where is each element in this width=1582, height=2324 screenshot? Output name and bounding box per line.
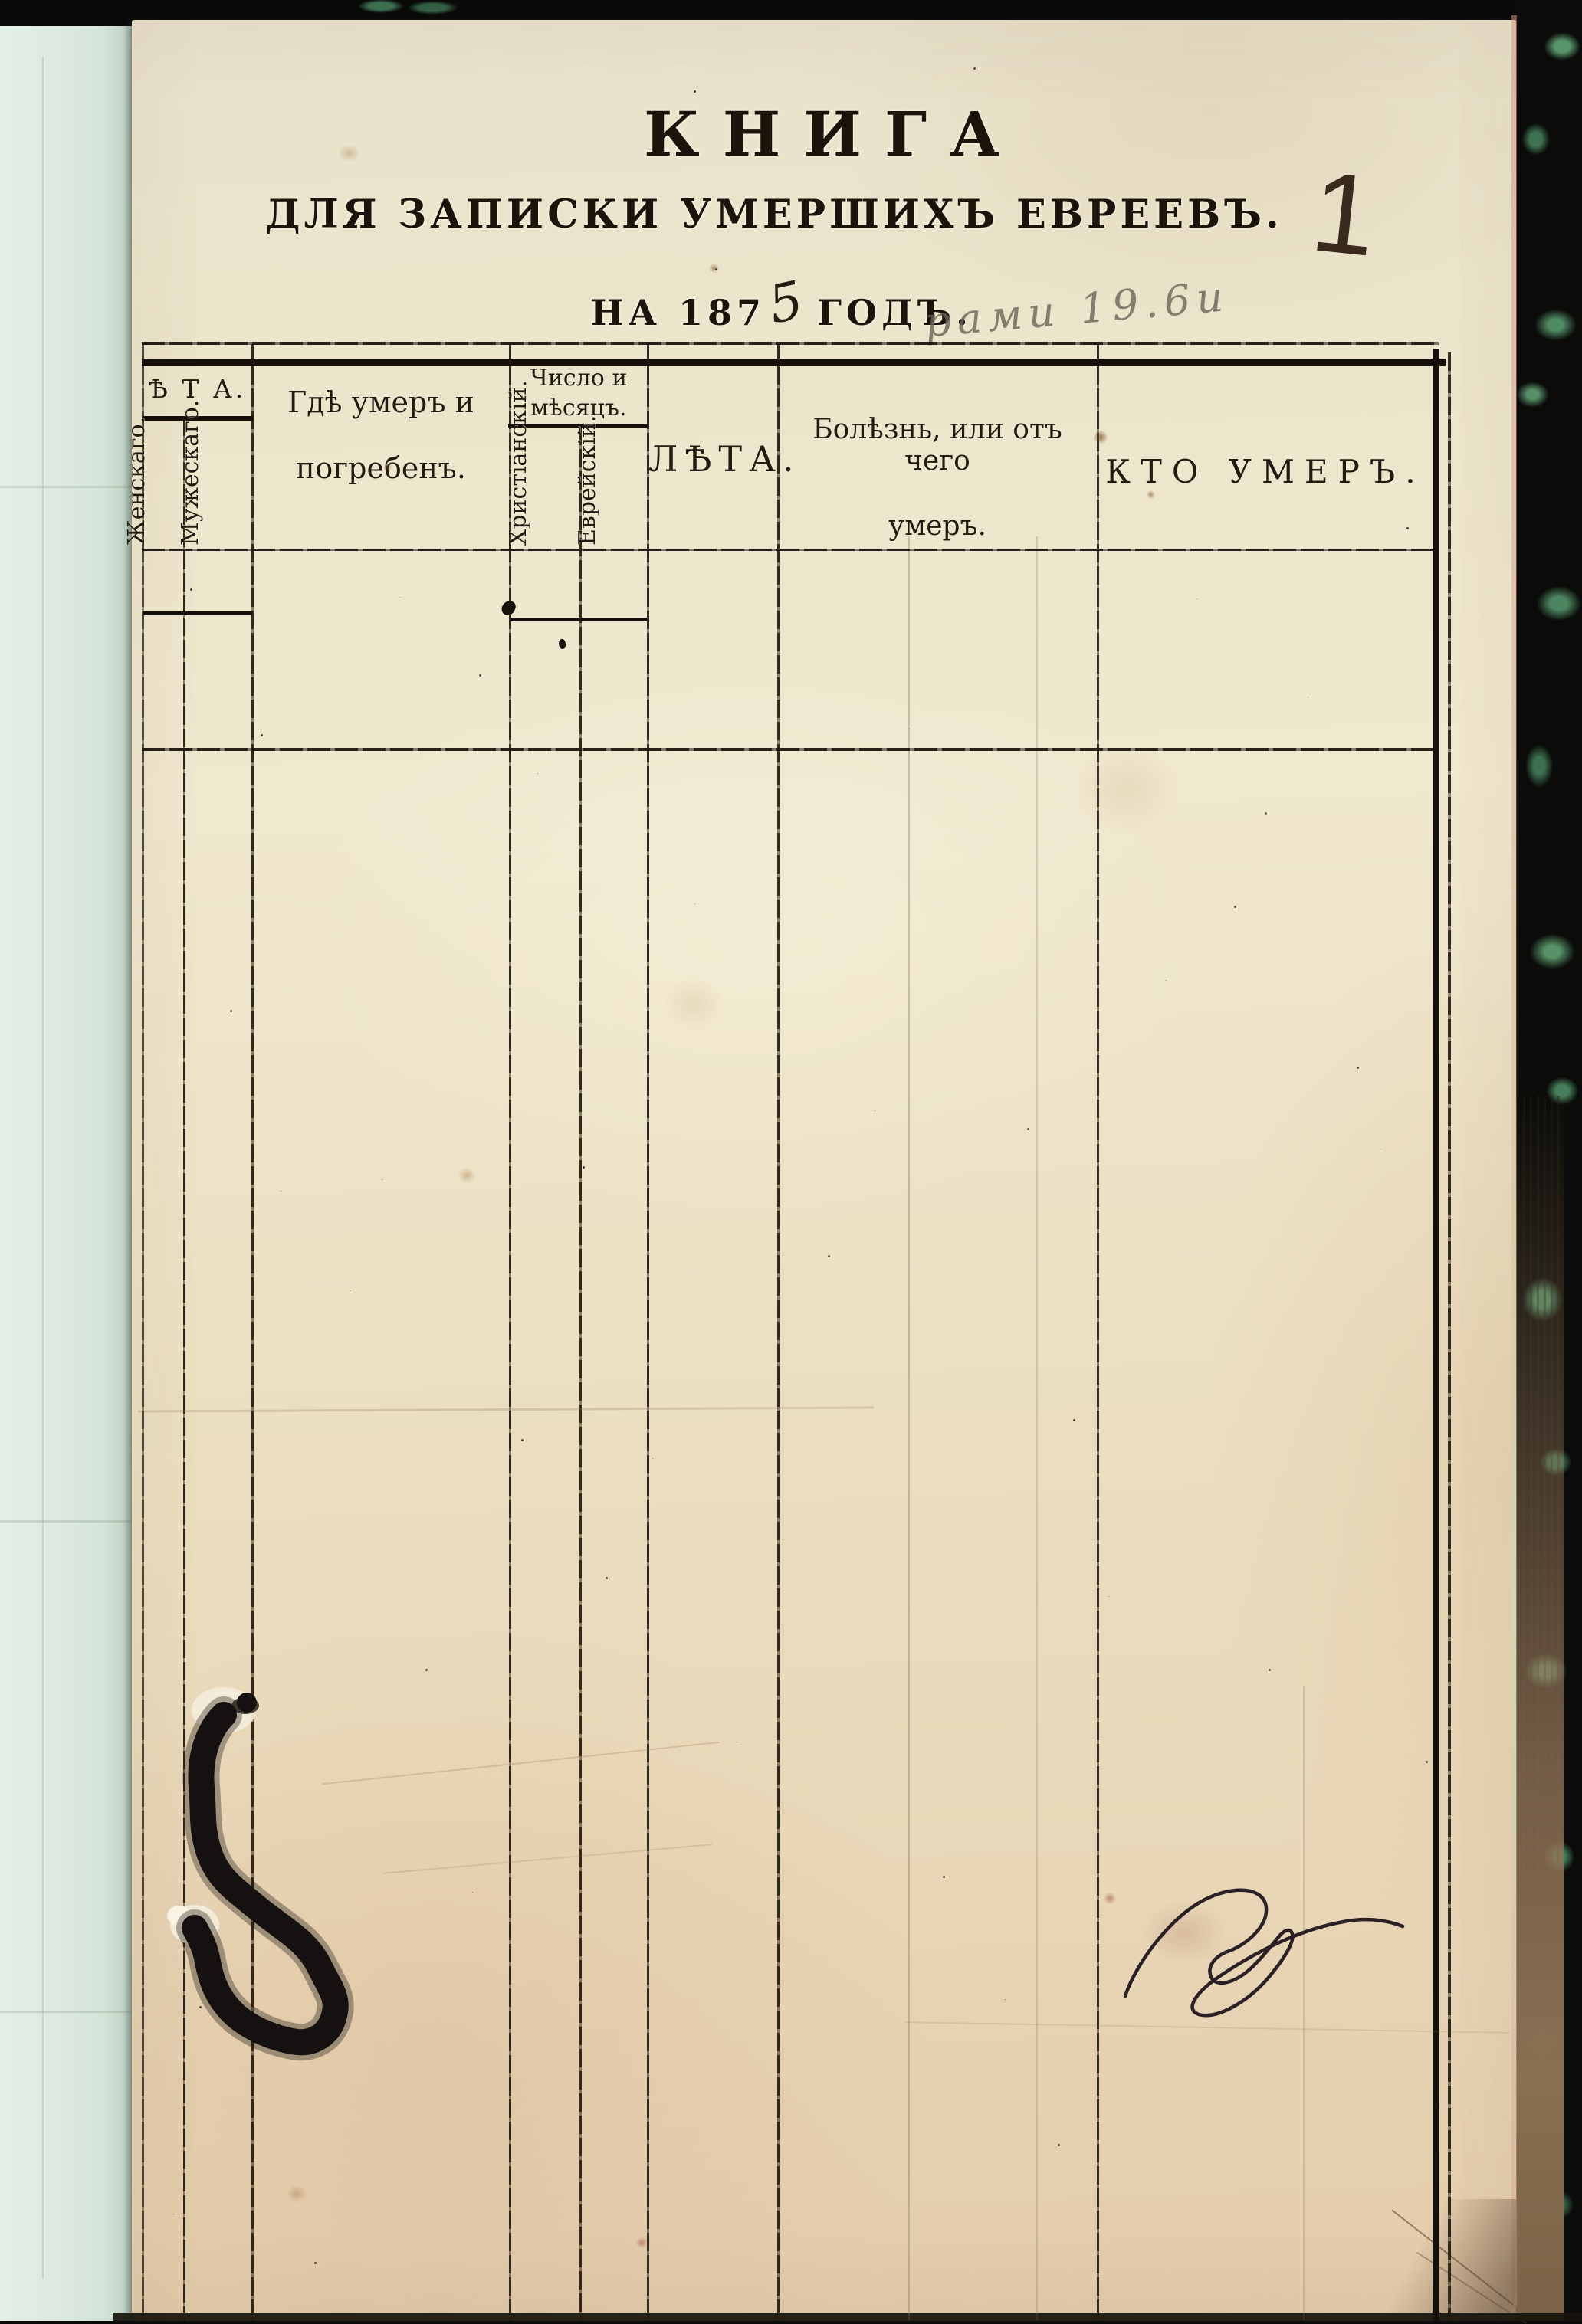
facing-page-crease [0,486,132,488]
first-row-rule [142,748,1437,751]
facing-page-fold [42,57,44,2279]
header-where-line1: Гдѣ умеръ и [254,385,507,419]
paper-specks [0,0,2,2]
foxing-stain [663,977,724,1031]
page-subtitle: ДЛЯ ЗАПИСКИ УМЕРШИХЪ ЕВРЕЕВЪ. [253,192,1295,238]
foxing-spot [287,2185,307,2202]
header-where-died: Гдѣ умеръ и погребенъ. [254,385,507,485]
year-line: НА 1875ГОДЪ. [590,277,950,338]
header-date-christian: Христіанскій. [506,380,532,546]
column-line-age-cause [777,344,780,2321]
facing-page-crease [0,1520,132,1523]
header-where-line2: погребенъ. [254,451,507,485]
column-line-where-date [509,344,511,2321]
column-line-date-age [647,344,649,2321]
table-right-border-thin [1448,352,1451,2321]
paper-fold-line [908,536,910,2321]
page-title: КНИГА [621,98,1004,170]
dog-eared-corner-shadow [1295,2199,1516,2321]
header-age-female: Женскаго. [124,417,150,546]
foxing-spot [636,2237,648,2248]
partial-row-rule-left [143,611,252,615]
foxing-stain [1073,743,1180,835]
header-who-died: КТО УМЕРЪ. [1098,453,1433,490]
header-cause-of-death: Болѣзнь, или отъ чего умеръ. [779,414,1096,542]
page-edge-highlight [1511,15,1517,2306]
signature-flourish [1095,1870,1424,2038]
page-stack-edges [1516,1096,1564,2321]
header-date-jewish: Еврейскій. [575,415,601,546]
marbled-cover-fragment [346,0,461,15]
handwritten-year-digit: 5 [763,270,809,336]
header-cause-line1: Болѣзнь, или отъ чего [779,414,1096,477]
table-top-thin-rule [142,342,1439,345]
header-age-male: Мужескаго. [178,400,204,546]
scan-bottom-edge [113,2313,1582,2321]
header-age: ЛѢТА. [648,438,777,480]
handwritten-page-number: 1 [1306,155,1380,274]
foxing-spot [709,264,719,273]
binding-cord [130,1640,360,2084]
foxing-spot [383,463,392,471]
header-cause-line2: умеръ. [779,510,1096,542]
foxing-spot [1147,490,1155,499]
table-top-thick-rule [142,359,1446,366]
header-bottom-rule [142,549,1436,551]
foxing-spot [1094,431,1108,444]
foxing-spot [337,144,360,162]
paper-fold-line [1036,536,1038,2321]
column-line-christian-jewish [579,427,582,2321]
partial-row-rule-date [510,618,647,621]
cord-tip [237,1693,257,1713]
year-prefix: НА 187 [590,292,766,333]
foxing-spot [458,1168,475,1183]
facing-page-edge [0,26,132,2321]
facing-page-crease [0,2011,132,2013]
table-right-border-thick [1433,349,1439,2321]
signature-stroke [1125,1890,1403,2016]
